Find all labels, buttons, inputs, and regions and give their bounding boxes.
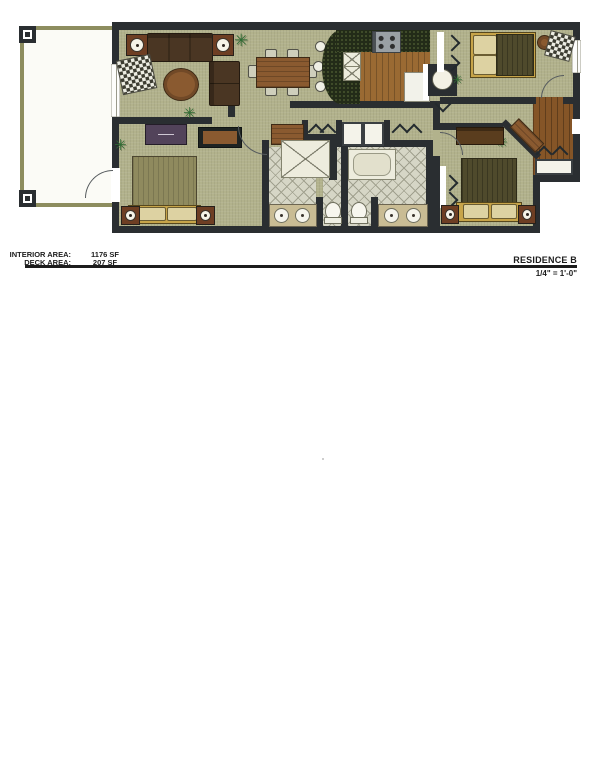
entry-closet xyxy=(535,159,573,175)
wall xyxy=(341,147,348,226)
nightstand-lamp xyxy=(441,205,459,224)
vanity-sink xyxy=(384,208,399,223)
toilet xyxy=(325,202,341,220)
sofa xyxy=(147,33,213,62)
end-table-lamp xyxy=(126,34,148,56)
nightstand-lamp xyxy=(518,205,536,224)
vanity-sink xyxy=(406,208,421,223)
column-marker xyxy=(19,190,36,207)
wall xyxy=(563,97,573,104)
wall xyxy=(533,175,540,233)
door-opening xyxy=(433,130,440,156)
wall xyxy=(290,101,433,108)
wall xyxy=(371,197,378,226)
pillow xyxy=(473,55,497,75)
wall xyxy=(533,175,580,182)
bed-duvet xyxy=(461,158,517,208)
pillow xyxy=(463,204,489,219)
kitchen-sink xyxy=(343,66,361,81)
wall xyxy=(112,22,580,30)
title-rule xyxy=(25,265,577,268)
pillow xyxy=(136,207,166,221)
shower xyxy=(281,140,330,178)
title-block: INTERIOR AREA: 1176 SF DECK AREA: 207 SF… xyxy=(0,248,600,282)
coffee-table xyxy=(163,68,199,101)
wall xyxy=(384,120,390,147)
wall xyxy=(433,101,440,226)
closet-door xyxy=(437,32,444,72)
stove xyxy=(372,31,401,53)
kitchen-sink xyxy=(343,52,361,67)
plant-icon: ✳ xyxy=(234,33,248,50)
armchair-pair xyxy=(209,61,240,106)
toilet xyxy=(351,202,367,220)
linen-closet xyxy=(342,122,363,146)
plant-icon: ✳ xyxy=(452,74,463,87)
nightstand-lamp xyxy=(121,206,140,225)
nightstand-lamp xyxy=(196,206,215,225)
bed-duvet xyxy=(132,156,197,212)
end-table-lamp xyxy=(212,34,234,56)
plant-icon: ✳ xyxy=(183,106,196,121)
wall xyxy=(316,197,323,226)
wall xyxy=(119,117,212,124)
floor-plan-sheet: ✳ ✳ xyxy=(0,0,600,777)
pillow xyxy=(167,207,197,221)
column-marker xyxy=(19,26,36,43)
sheet-scale: 1/4" = 1'-0" xyxy=(377,269,577,278)
exterior-notch xyxy=(540,182,582,233)
dining-table xyxy=(256,57,310,88)
wall xyxy=(112,226,540,233)
vanity-sink xyxy=(295,208,310,223)
area-rug xyxy=(116,54,158,96)
tv-console xyxy=(198,127,242,148)
bathtub xyxy=(348,149,396,180)
bed-duvet xyxy=(496,34,534,76)
vanity-sink xyxy=(274,208,289,223)
pillow xyxy=(491,204,517,219)
wall xyxy=(440,97,536,104)
pillow xyxy=(473,35,497,55)
desk xyxy=(456,127,504,145)
entry-door-opening xyxy=(572,119,581,134)
dresser xyxy=(145,124,187,145)
linen-closet xyxy=(363,122,384,146)
scan-speck xyxy=(322,458,324,460)
sheet-title: RESIDENCE B xyxy=(377,255,577,265)
plant-icon: ✳ xyxy=(114,138,127,153)
